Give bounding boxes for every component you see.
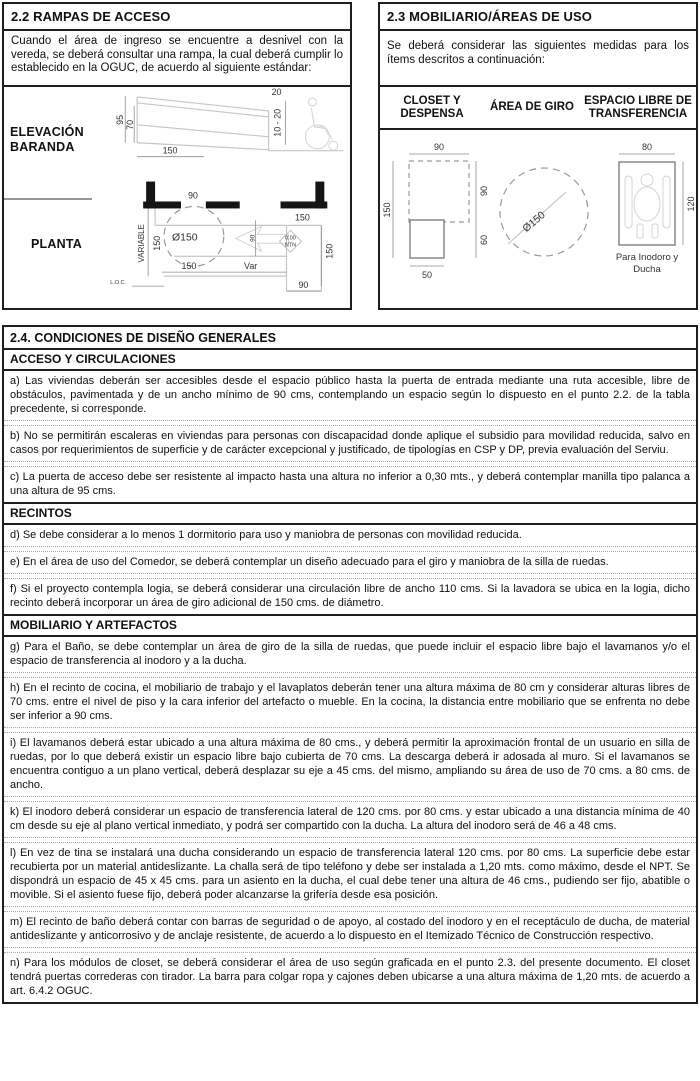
paragraph-f: f) Si el proyecto contempla logia, se de… <box>4 579 696 614</box>
document-page: { "rampas": { "title": "2.2 RAMPAS DE AC… <box>0 0 700 1081</box>
dim-closet-50-bottom: 50 <box>422 270 432 280</box>
panel-mobiliario-intro: Se deberá considerar las siguientes medi… <box>380 31 696 87</box>
dim-transfer-80-top: 80 <box>642 142 652 152</box>
ramp-direction-arrow <box>236 226 289 251</box>
ramp-elevation-drawing: 95 70 150 20 10 - 20 <box>115 87 343 157</box>
paragraph-k: k) El inodoro deberá considerar un espac… <box>4 802 696 837</box>
dim-right-150-label: 150 <box>295 212 310 222</box>
panel-mobiliario-areas-de-uso: 2.3 MOBILIARIO/ÁREAS DE USO Se deberá co… <box>378 2 698 310</box>
closet-drawing: 90 150 90 60 50 <box>382 142 489 280</box>
dim-door-90-label: 90 <box>188 190 198 200</box>
row-divider-line <box>4 198 92 200</box>
dim-ramp-90-label: 90 <box>250 234 257 242</box>
paragraph-l: l) En vez de tina se instalará una ducha… <box>4 843 696 906</box>
dim-closet-90-right: 90 <box>479 186 489 196</box>
dim-70-label: 70 <box>125 120 135 130</box>
dim-150-elev-label: 150 <box>163 146 178 156</box>
panel-rampas-intro: Cuando el área de ingreso se encuentre a… <box>4 31 350 87</box>
dim-var-label: Var <box>244 261 257 271</box>
paragraph-b: b) No se permitirán escaleras en viviend… <box>4 426 696 461</box>
subheader-mobiliario-y-artefactos: MOBILIARIO Y ARTEFACTOS <box>4 614 696 637</box>
panel-rampas-de-acceso: 2.2 RAMPAS DE ACCESO Cuando el área de i… <box>2 2 352 310</box>
paragraph-c: c) La puerta de acceso debe ser resisten… <box>4 467 696 502</box>
paragraph-h: h) En el recinto de cocina, el mobiliari… <box>4 678 696 727</box>
subheader-recintos: RECINTOS <box>4 502 696 525</box>
mobiliario-diagram-area: 90 150 90 60 50 Ø150 80 <box>380 130 696 306</box>
dim-closet-90-top: 90 <box>434 142 444 152</box>
col-header-area-giro: ÁREA DE GIRO <box>484 101 580 114</box>
col-header-closet: CLOSET Y DESPENSA <box>380 95 484 120</box>
dim-bottom-150-label: 150 <box>181 261 196 271</box>
espacio-transferencia-drawing: 80 120 Para Inodoro y Ducha <box>616 142 696 275</box>
dim-10-20-label: 10 - 20 <box>273 109 283 137</box>
section-2-4-title: 2.4. CONDICIONES DE DISEÑO GENERALES <box>4 327 696 350</box>
transfer-caption-line2: Ducha <box>633 264 661 275</box>
wheelchair-side-icon <box>305 98 337 150</box>
subheader-acceso-y-circulaciones: ACCESO Y CIRCULACIONES <box>4 350 696 371</box>
svg-text:0.00: 0.00 <box>285 235 296 241</box>
dim-left-150-label: 150 <box>152 236 162 251</box>
dim-diameter-150-label: Ø150 <box>172 232 198 243</box>
rampas-technical-drawing: 95 70 150 20 10 - 20 <box>4 87 350 306</box>
dim-closet-60-right: 60 <box>479 235 489 245</box>
planta-label: PLANTA <box>31 237 82 252</box>
area-giro-drawing: Ø150 <box>500 168 588 256</box>
dim-variable-label: VARIABLE <box>137 224 146 262</box>
paragraph-a: a) Las viviendas deberán ser accesibles … <box>4 371 696 420</box>
level-marker-ntn: 0.00 NTN <box>280 230 302 252</box>
panel-mobiliario-title: 2.3 MOBILIARIO/ÁREAS DE USO <box>380 4 696 31</box>
section-condiciones-diseno: 2.4. CONDICIONES DE DISEÑO GENERALES ACC… <box>2 325 698 1004</box>
ramp-plan-drawing: Ø150 90 150 VARIABLE 150 150 Var 90 0.00… <box>110 182 334 292</box>
paragraph-n: n) Para los módulos de closet, se deberá… <box>4 953 696 1002</box>
transfer-caption-line1: Para Inodoro y <box>616 252 679 263</box>
dim-br-90-label: 90 <box>298 280 308 290</box>
paragraph-d: d) Se debe considerar a lo menos 1 dormi… <box>4 525 696 546</box>
paragraph-i: i) El lavamanos deberá estar ubicado a u… <box>4 733 696 796</box>
paragraph-m: m) El recinto de baño deberá contar con … <box>4 912 696 947</box>
mobiliario-column-headers: CLOSET Y DESPENSA ÁREA DE GIRO ESPACIO L… <box>380 87 696 130</box>
dim-transfer-120-right: 120 <box>686 196 696 211</box>
paragraph-e: e) En el área de uso del Comedor, se deb… <box>4 552 696 573</box>
dim-vert-150-label: 150 <box>324 244 334 259</box>
paragraph-g: g) Para el Baño, se debe contemplar un á… <box>4 637 696 672</box>
svg-text:NTN: NTN <box>285 242 296 248</box>
dim-95-label: 95 <box>115 115 125 125</box>
loc-label: L.O.C. <box>110 280 126 286</box>
dim-20-label: 20 <box>272 87 282 97</box>
rampas-diagram-area: ELEVACIÓN BARANDA PLANTA <box>4 87 350 306</box>
dim-closet-150-left: 150 <box>382 202 392 217</box>
elevacion-baranda-label: ELEVACIÓN BARANDA <box>10 125 84 155</box>
panel-rampas-title: 2.2 RAMPAS DE ACCESO <box>4 4 350 31</box>
mobiliario-technical-drawing: 90 150 90 60 50 Ø150 80 <box>380 130 696 306</box>
wheelchair-top-icon <box>625 174 670 238</box>
dim-giro-diameter: Ø150 <box>520 209 548 235</box>
col-header-espacio-libre: ESPACIO LIBRE DE TRANSFERENCIA <box>580 95 696 120</box>
